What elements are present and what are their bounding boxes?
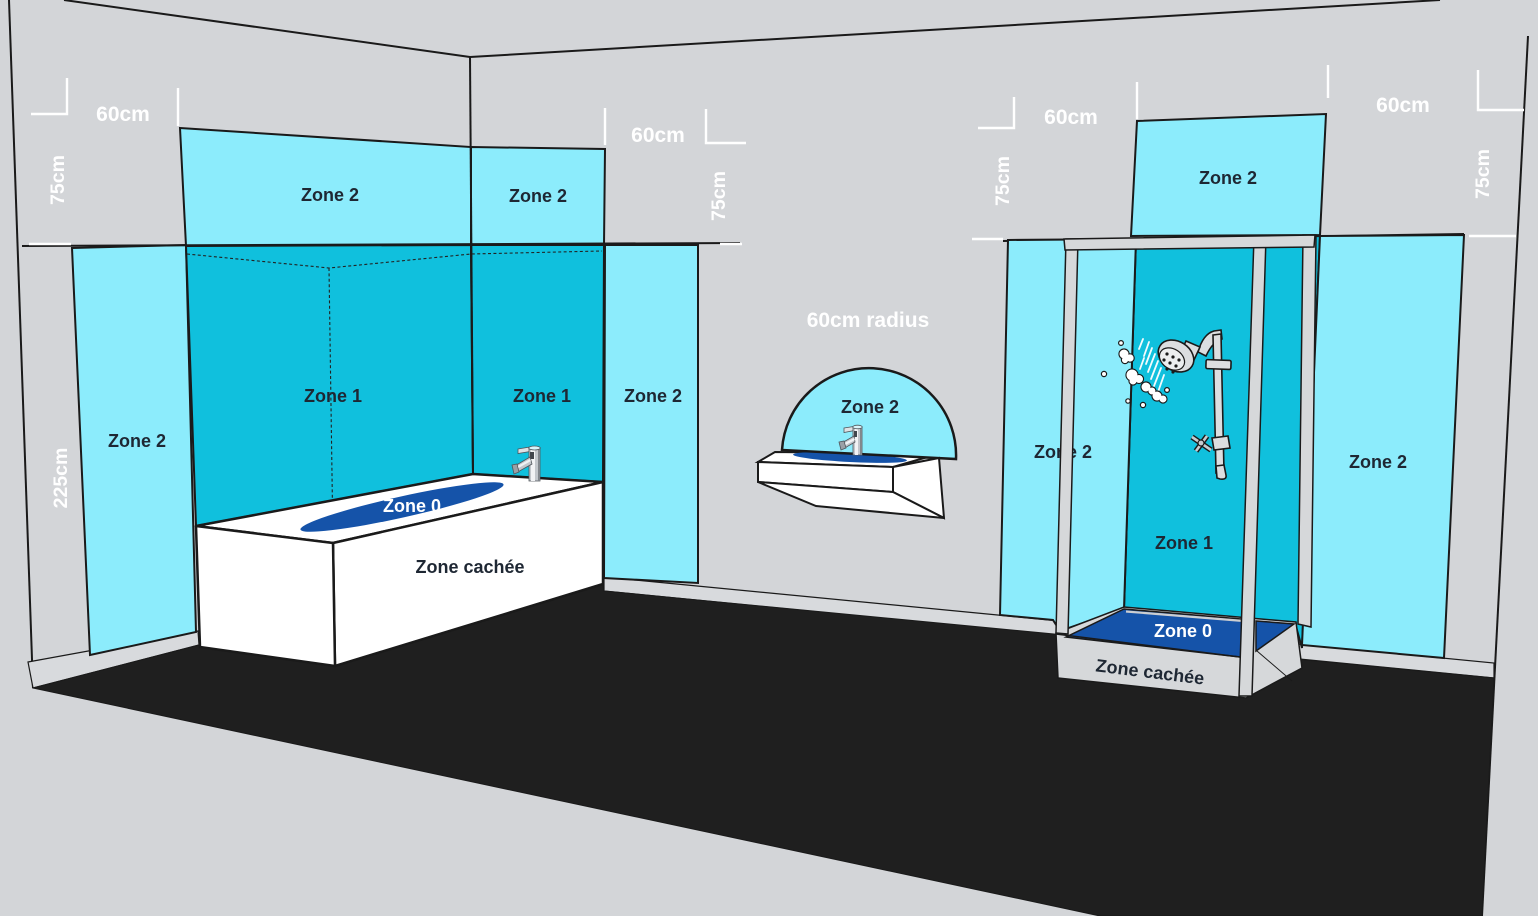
svg-text:Zone 1: Zone 1 xyxy=(304,386,362,406)
svg-text:Zone 2: Zone 2 xyxy=(1199,168,1257,188)
svg-text:Zone 1: Zone 1 xyxy=(1155,533,1213,553)
svg-text:60cm: 60cm xyxy=(96,103,150,126)
svg-text:Zone 2: Zone 2 xyxy=(108,431,166,451)
svg-text:Zone 2: Zone 2 xyxy=(301,185,359,205)
svg-text:Zone 2: Zone 2 xyxy=(624,386,682,406)
svg-text:60cm: 60cm xyxy=(1376,94,1430,117)
svg-text:60cm radius: 60cm radius xyxy=(807,309,930,332)
svg-text:Zone 0: Zone 0 xyxy=(383,496,441,516)
svg-text:75cm: 75cm xyxy=(1472,149,1494,199)
svg-text:75cm: 75cm xyxy=(992,156,1014,206)
svg-text:Zone 0: Zone 0 xyxy=(1154,621,1212,641)
svg-text:Zone 1: Zone 1 xyxy=(513,386,571,406)
svg-text:Zone 2: Zone 2 xyxy=(509,186,567,206)
svg-text:225cm: 225cm xyxy=(50,448,72,509)
svg-text:Zone 2: Zone 2 xyxy=(1349,452,1407,472)
svg-text:Zone 2: Zone 2 xyxy=(841,397,899,417)
svg-text:60cm: 60cm xyxy=(631,124,685,147)
svg-text:60cm: 60cm xyxy=(1044,106,1098,129)
svg-text:75cm: 75cm xyxy=(708,171,730,221)
svg-text:Zone cachée: Zone cachée xyxy=(415,557,524,577)
svg-text:75cm: 75cm xyxy=(47,155,69,205)
